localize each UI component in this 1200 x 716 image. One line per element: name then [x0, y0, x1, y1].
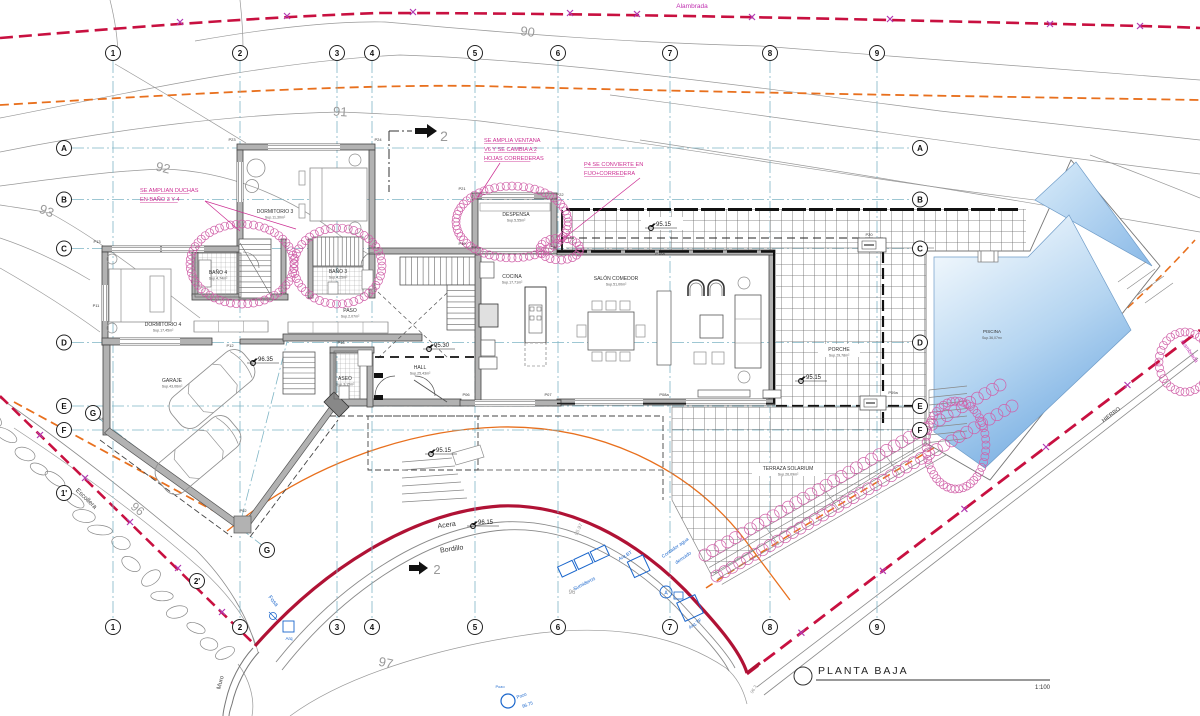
- svg-text:9: 9: [875, 49, 880, 58]
- svg-text:1: 1: [111, 623, 116, 632]
- svg-text:Arq: Arq: [285, 636, 293, 641]
- svg-text:Sup.17,71m²: Sup.17,71m²: [502, 281, 523, 285]
- svg-text:G: G: [90, 409, 96, 418]
- svg-text:PORCHE: PORCHE: [828, 347, 850, 353]
- svg-text:8: 8: [768, 623, 773, 632]
- svg-text:2: 2: [238, 49, 243, 58]
- svg-text:FIJO+CORREDERA: FIJO+CORREDERA: [584, 171, 635, 177]
- svg-text:P16: P16: [337, 340, 345, 345]
- svg-text:Sup.43,06m²: Sup.43,06m²: [162, 385, 183, 389]
- svg-text:95.15: 95.15: [656, 222, 672, 228]
- svg-text:COCINA: COCINA: [502, 274, 522, 280]
- svg-text:8: 8: [768, 49, 773, 58]
- svg-text:97: 97: [377, 654, 394, 672]
- svg-text:6: 6: [556, 49, 561, 58]
- svg-text:D: D: [61, 338, 67, 347]
- svg-text:PISCINA: PISCINA: [983, 329, 1001, 334]
- svg-text:BAÑO 3: BAÑO 3: [329, 268, 348, 275]
- svg-text:2': 2': [194, 577, 200, 586]
- svg-text:P08a: P08a: [659, 392, 669, 397]
- svg-text:HALL: HALL: [414, 365, 427, 371]
- svg-text:P06: P06: [462, 392, 470, 397]
- svg-text:P13: P13: [93, 239, 101, 244]
- svg-text:5: 5: [473, 623, 478, 632]
- svg-text:P20: P20: [865, 232, 873, 237]
- svg-text:2: 2: [440, 128, 448, 144]
- svg-text:E: E: [917, 402, 923, 411]
- svg-text:DORMITORIO 3: DORMITORIO 3: [257, 209, 294, 215]
- svg-text:Sup.25,43m²: Sup.25,43m²: [410, 372, 431, 376]
- svg-text:G: G: [264, 546, 270, 555]
- svg-text:V6 Y SE CAMBIA A 2: V6 Y SE CAMBIA A 2: [484, 147, 537, 153]
- svg-text:Sup.5,55m²: Sup.5,55m²: [507, 219, 526, 223]
- svg-text:96.15: 96.15: [478, 520, 494, 526]
- svg-text:95.30: 95.30: [434, 343, 450, 349]
- svg-text:91: 91: [333, 104, 348, 120]
- svg-text:Sup.26,09m²: Sup.26,09m²: [778, 473, 799, 477]
- svg-text:95.15: 95.15: [436, 448, 452, 454]
- svg-text:PASO: PASO: [343, 308, 357, 314]
- svg-text:HOJAS CORREDERAS: HOJAS CORREDERAS: [484, 156, 544, 162]
- svg-text:SALÓN COMEDOR: SALÓN COMEDOR: [594, 275, 639, 282]
- svg-text:90: 90: [519, 23, 535, 40]
- svg-text:Sup.3,15m²: Sup.3,15m²: [336, 383, 355, 387]
- svg-text:F: F: [62, 426, 67, 435]
- svg-text:6: 6: [556, 623, 561, 632]
- svg-text:A: A: [917, 144, 923, 153]
- svg-text:Alambrada: Alambrada: [676, 3, 708, 10]
- svg-text:DESPENSA: DESPENSA: [502, 212, 530, 218]
- svg-text:Pozo: Pozo: [495, 684, 505, 689]
- svg-text:96.35: 96.35: [258, 357, 274, 363]
- svg-text:1:100: 1:100: [1035, 685, 1051, 691]
- svg-text:9: 9: [875, 623, 880, 632]
- svg-text:EN BAÑO 3 Y 4: EN BAÑO 3 Y 4: [140, 196, 180, 203]
- svg-text:P18a: P18a: [655, 251, 665, 256]
- svg-text:C: C: [61, 244, 67, 253]
- svg-text:GARAJE: GARAJE: [162, 378, 183, 384]
- svg-text:2: 2: [238, 623, 243, 632]
- svg-text:Sup.29,78m²: Sup.29,78m²: [829, 354, 850, 358]
- svg-text:Sup.2,07m²: Sup.2,07m²: [341, 315, 360, 319]
- svg-text:B: B: [917, 195, 923, 204]
- svg-text:P21: P21: [458, 186, 466, 191]
- svg-text:P11: P11: [93, 303, 101, 308]
- svg-text:7: 7: [668, 623, 673, 632]
- svg-text:5: 5: [473, 49, 478, 58]
- svg-text:Sup.17,45m²: Sup.17,45m²: [153, 329, 174, 333]
- svg-text:B: B: [61, 195, 67, 204]
- svg-text:Sup.4,74m²: Sup.4,74m²: [209, 277, 228, 281]
- svg-text:C: C: [917, 244, 923, 253]
- svg-text:SE AMPLIAN DUCHAS: SE AMPLIAN DUCHAS: [140, 188, 199, 194]
- svg-text:2: 2: [433, 562, 440, 577]
- svg-text:P4 SE CONVIERTE EN: P4 SE CONVIERTE EN: [584, 162, 643, 168]
- svg-text:Sup.36,07m²: Sup.36,07m²: [982, 336, 1003, 340]
- svg-text:ASEO: ASEO: [338, 376, 352, 382]
- svg-text:4: 4: [370, 623, 375, 632]
- svg-text:P23: P23: [228, 137, 236, 142]
- svg-text:TERRAZA SOLARIUM: TERRAZA SOLARIUM: [763, 466, 814, 472]
- svg-text:F: F: [918, 426, 923, 435]
- svg-text:P22: P22: [556, 192, 564, 197]
- svg-text:BAÑO 4: BAÑO 4: [209, 269, 228, 276]
- svg-text:1: 1: [111, 49, 116, 58]
- svg-text:E: E: [61, 402, 67, 411]
- svg-text:1': 1': [61, 489, 67, 498]
- svg-text:PLANTA BAJA: PLANTA BAJA: [818, 665, 909, 677]
- svg-text:3: 3: [335, 49, 340, 58]
- svg-text:P19: P19: [458, 241, 466, 246]
- svg-text:P24: P24: [374, 137, 382, 142]
- svg-text:4: 4: [370, 49, 375, 58]
- svg-text:Sup.51,00m²: Sup.51,00m²: [606, 283, 627, 287]
- svg-text:P02: P02: [239, 508, 247, 513]
- svg-text:P12: P12: [226, 343, 234, 348]
- svg-text:Sup.4,25m²: Sup.4,25m²: [329, 276, 348, 280]
- svg-text:3: 3: [335, 623, 340, 632]
- svg-text:P09a: P09a: [888, 390, 898, 395]
- svg-text:95.15: 95.15: [806, 375, 822, 381]
- svg-text:D: D: [917, 338, 923, 347]
- svg-text:A: A: [61, 144, 67, 153]
- svg-text:P07: P07: [544, 392, 552, 397]
- svg-text:SE AMPLIA VENTANA: SE AMPLIA VENTANA: [484, 138, 541, 144]
- svg-text:Sup.11,30m²: Sup.11,30m²: [265, 216, 286, 220]
- svg-text:DORMITORIO 4: DORMITORIO 4: [145, 322, 182, 328]
- svg-text:7: 7: [668, 49, 673, 58]
